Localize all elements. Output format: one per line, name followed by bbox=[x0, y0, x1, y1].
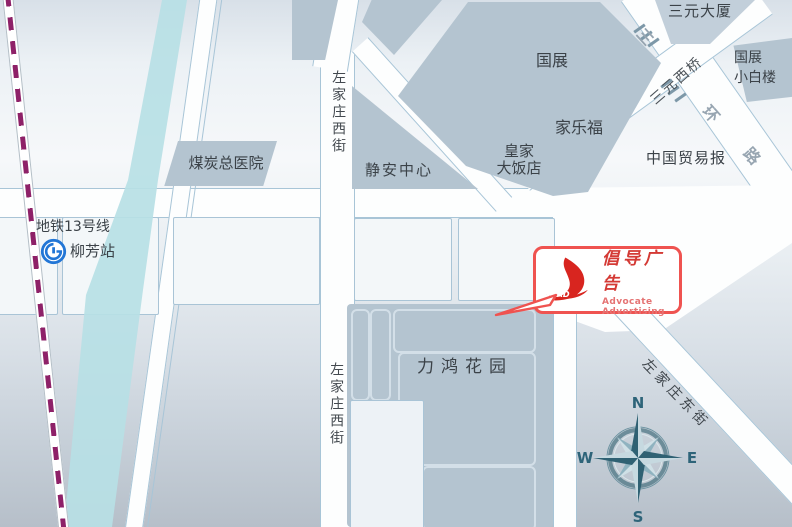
metro-line-label: 地铁13号线 bbox=[36, 219, 110, 235]
callout-tail bbox=[490, 292, 562, 320]
road-east-of-lihong bbox=[553, 298, 577, 527]
compass-rose: N S W E bbox=[575, 390, 705, 527]
carrefour-label: 家乐福 bbox=[543, 119, 615, 137]
royal-hotel-line2: 大饭店 bbox=[496, 159, 541, 177]
block-lihong-south bbox=[422, 466, 536, 527]
block-lihong-strip-2 bbox=[370, 309, 391, 401]
sanyuan-tower-label: 三元大厦 bbox=[662, 3, 738, 20]
lihong-garden-label: 力鸿花园 bbox=[404, 358, 526, 378]
royal-hotel-line1: 皇家 bbox=[504, 142, 534, 160]
street-zuojiazhuang-west-label-1: 左家庄西街 bbox=[330, 70, 346, 155]
block-lihong-strip-1 bbox=[351, 309, 370, 401]
bridge-mark bbox=[674, 93, 686, 103]
hospital-label: 煤炭总医院 bbox=[176, 155, 276, 172]
trade-news-label: 中国贸易报 bbox=[640, 150, 732, 167]
xiaobailou-line2: 小白楼 bbox=[734, 70, 776, 86]
company-name-cn: 倡导广告 bbox=[602, 244, 679, 294]
map-canvas: 地铁13号线 柳芳站 煤炭总医院 左家庄西街 左家庄西街 静安中心 国展 家乐福… bbox=[0, 0, 792, 527]
metro-logo-icon bbox=[40, 238, 67, 265]
block-outline-3 bbox=[173, 217, 320, 305]
compass-n: N bbox=[632, 394, 645, 412]
compass-w: W bbox=[577, 449, 594, 467]
block-outline-4 bbox=[354, 218, 452, 301]
metro-station-label: 柳芳站 bbox=[70, 243, 115, 260]
jingan-center-label: 静安中心 bbox=[357, 162, 441, 179]
compass-e: E bbox=[687, 449, 697, 467]
block-lihong-notch bbox=[350, 400, 424, 527]
street-zuojiazhuang-west-label-2: 左家庄西街 bbox=[328, 362, 344, 447]
guozhan-label: 国展 bbox=[519, 52, 585, 70]
compass-s: S bbox=[633, 508, 644, 526]
royal-hotel-label: 皇家 大饭店 bbox=[487, 143, 551, 178]
company-name-en: Advocate Advertising bbox=[602, 297, 679, 317]
xiaobailou-line1: 国展 bbox=[734, 50, 762, 66]
xiaobailou-label: 国展 小白楼 bbox=[734, 48, 792, 89]
